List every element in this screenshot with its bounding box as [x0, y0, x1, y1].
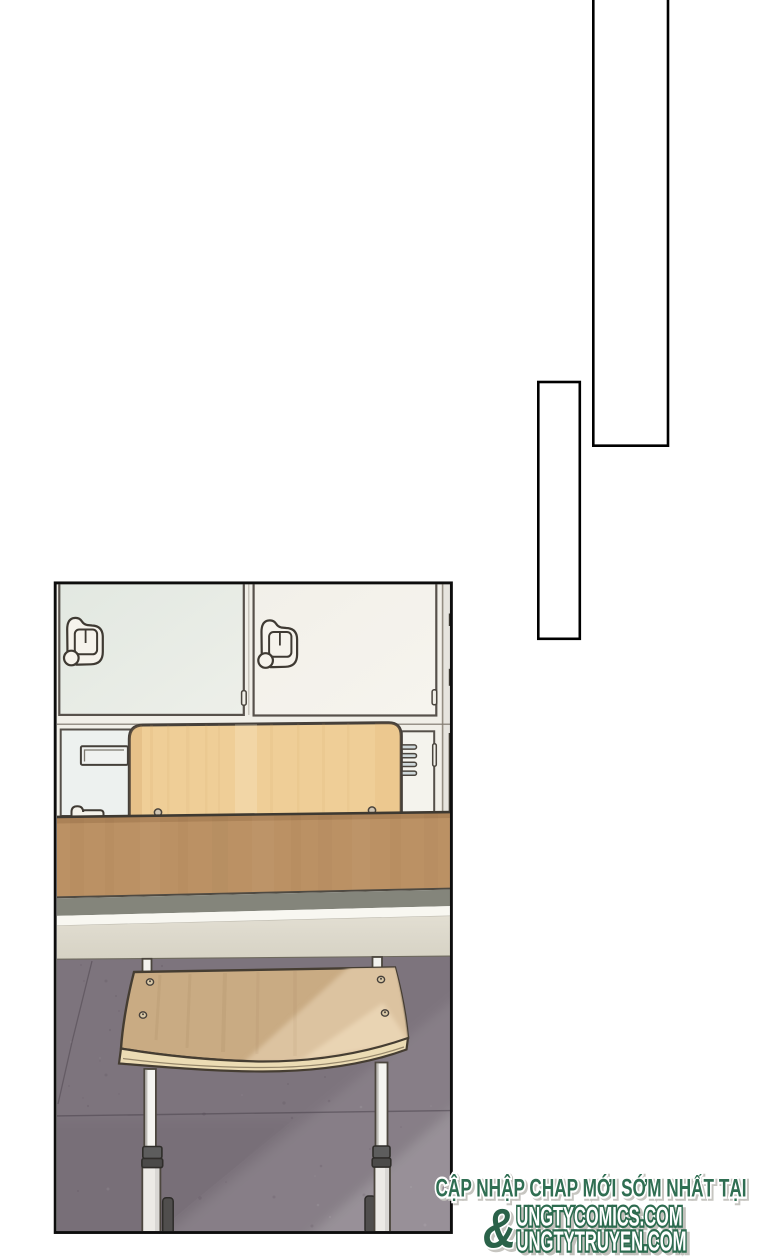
svg-text:UNGTYTRUYEN.COM: UNGTYTRUYEN.COM — [517, 1226, 687, 1257]
svg-text:&: & — [483, 1197, 516, 1260]
